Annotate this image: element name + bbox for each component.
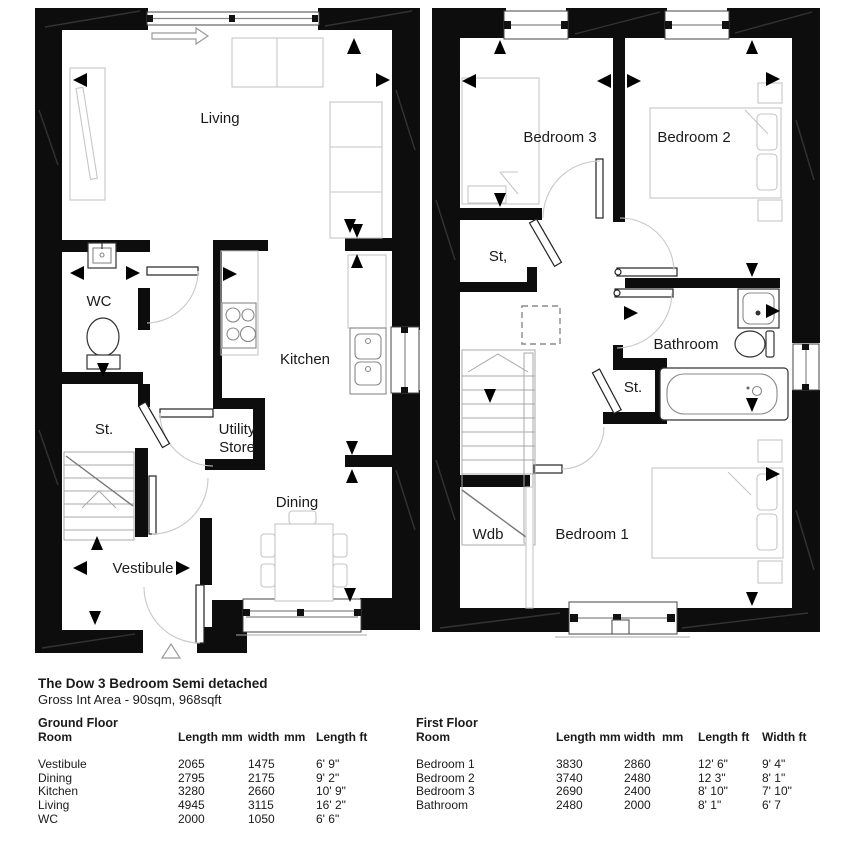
cell: 2690 — [556, 785, 624, 799]
cell: 6' 7 — [762, 799, 832, 813]
cell: Bathroom — [416, 799, 556, 813]
cell: 9' 4" — [762, 758, 832, 772]
label-bedroom1: Bedroom 1 — [555, 526, 628, 543]
cell: 2795 — [178, 772, 248, 786]
cell: 3280 — [178, 785, 248, 799]
label-first-st-lower: St. — [624, 379, 642, 396]
cell: 6' 6" — [316, 813, 408, 827]
front-door — [144, 585, 204, 658]
bathroom-window — [793, 344, 819, 390]
label-wdb: Wdb — [473, 526, 504, 543]
col-header: Width ft — [762, 731, 832, 745]
cell: Bedroom 3 — [416, 785, 556, 799]
cell: Kitchen — [38, 785, 178, 799]
cell: 7' 10" — [762, 785, 832, 799]
label-first-st-upper: St, — [489, 248, 507, 265]
col-header: mm — [284, 731, 316, 745]
first-st-upper-door — [530, 219, 562, 266]
col-header: Length mm — [556, 731, 624, 745]
bedroom1-window — [555, 602, 690, 637]
cell: 2660 — [248, 785, 284, 799]
cell: Living — [38, 799, 178, 813]
kitchen-window — [391, 327, 419, 393]
cell: Bedroom 2 — [416, 772, 556, 786]
col-header: width — [624, 731, 662, 745]
col-header: Length mm — [178, 731, 248, 745]
label-dining: Dining — [276, 494, 319, 511]
first-st-lower-door — [592, 369, 621, 413]
table-title: First Floor — [416, 717, 832, 731]
label-ground-st: St. — [95, 421, 113, 438]
cell: 3115 — [248, 799, 284, 813]
ground-floor-grid: Room Length mm width mm Length ft Vestib… — [38, 731, 408, 827]
kitchen-sink-icon — [350, 328, 386, 394]
page-subtitle: Gross Int Area - 90sqm, 968sqft — [38, 692, 268, 708]
bed1-icon — [652, 440, 783, 583]
col-header: mm — [662, 731, 698, 745]
cell: 1050 — [248, 813, 284, 827]
table-title: Ground Floor — [38, 717, 408, 731]
label-bedroom2: Bedroom 2 — [657, 129, 730, 146]
cell: 9' 2" — [316, 772, 408, 786]
bedroom3-window — [504, 11, 568, 39]
label-utility-1: Utility — [219, 421, 256, 438]
cell: 16' 2" — [316, 799, 408, 813]
living-window — [147, 12, 319, 25]
corner-sofa-icon — [330, 102, 382, 238]
wc-basin-icon — [88, 243, 116, 268]
wc-door — [147, 267, 198, 323]
first-floor-plan: Bedroom 3 Bedroom 2 St, Bathroom St. Wdb… — [432, 8, 820, 637]
bathroom-toilet-icon — [735, 331, 774, 357]
cell: 1475 — [248, 758, 284, 772]
cell: Vestibule — [38, 758, 178, 772]
wc-toilet-icon — [87, 318, 120, 369]
label-bedroom3: Bedroom 3 — [523, 129, 596, 146]
loft-hatch-icon — [522, 306, 560, 344]
vestibule-door — [149, 476, 208, 534]
cell: WC — [38, 813, 178, 827]
first-stairs-icon — [462, 306, 560, 545]
cell: 6' 9" — [316, 758, 408, 772]
cell: 8' 1" — [762, 772, 832, 786]
cell: 8' 1" — [698, 799, 762, 813]
bedroom3-door — [543, 159, 603, 218]
floorplan-drawing: Living WC Kitchen Utility Store St. Dini… — [0, 0, 842, 660]
col-header: Length ft — [316, 731, 408, 745]
ground-stairs-icon — [64, 452, 134, 540]
cell: 8' 10" — [698, 785, 762, 799]
ground-floor-table: Ground Floor Room Length mm width mm Len… — [38, 717, 408, 826]
first-floor-table: First Floor Room Length mm width mm Leng… — [416, 717, 832, 813]
col-header: Room — [416, 731, 556, 745]
label-kitchen: Kitchen — [280, 351, 330, 368]
cell: 3740 — [556, 772, 624, 786]
cell: 2400 — [624, 785, 662, 799]
cell: Bedroom 1 — [416, 758, 556, 772]
dining-set-icon — [261, 511, 347, 601]
cell: 2065 — [178, 758, 248, 772]
cell: 2000 — [624, 799, 662, 813]
cell: 4945 — [178, 799, 248, 813]
bed2-icon — [650, 83, 782, 221]
cell: 12 3" — [698, 772, 762, 786]
label-utility-2: Store — [219, 439, 255, 456]
ground-floor-plan: Living WC Kitchen Utility Store St. Dini… — [35, 8, 420, 658]
label-vestibule: Vestibule — [113, 560, 174, 577]
dining-window — [236, 599, 367, 635]
utility-door — [160, 409, 213, 466]
cell: 12' 6" — [698, 758, 762, 772]
hob-icon — [222, 303, 256, 348]
label-living: Living — [200, 110, 239, 127]
cell: 3830 — [556, 758, 624, 772]
col-header: Room — [38, 731, 178, 745]
ground-labels: Living WC Kitchen Utility Store St. Dini… — [87, 110, 331, 577]
col-header: width — [248, 731, 284, 745]
bedroom1-door — [534, 427, 604, 473]
bedroom2-window — [665, 11, 729, 39]
page-title: The Dow 3 Bedroom Semi detached — [38, 676, 268, 692]
cell: 2860 — [624, 758, 662, 772]
bath-icon — [660, 368, 788, 420]
wardrobe-divider — [526, 487, 533, 608]
label-bathroom: Bathroom — [653, 336, 718, 353]
cell: 2480 — [624, 772, 662, 786]
cell: 2480 — [556, 799, 624, 813]
first-doors — [530, 159, 677, 473]
cell: 10' 9" — [316, 785, 408, 799]
title-block: The Dow 3 Bedroom Semi detached Gross In… — [38, 676, 268, 708]
cell: 2000 — [178, 813, 248, 827]
cell: Dining — [38, 772, 178, 786]
sofa-icon — [232, 38, 323, 87]
bedroom2-door — [615, 218, 677, 276]
col-header: Length ft — [698, 731, 762, 745]
floorplan-page: { "header": { "title": "The Dow 3 Bedroo… — [0, 0, 842, 842]
label-wc: WC — [87, 293, 112, 310]
tv-unit-icon — [70, 68, 105, 200]
first-floor-grid: Room Length mm width mm Length ft Width … — [416, 731, 832, 813]
cell: 2175 — [248, 772, 284, 786]
